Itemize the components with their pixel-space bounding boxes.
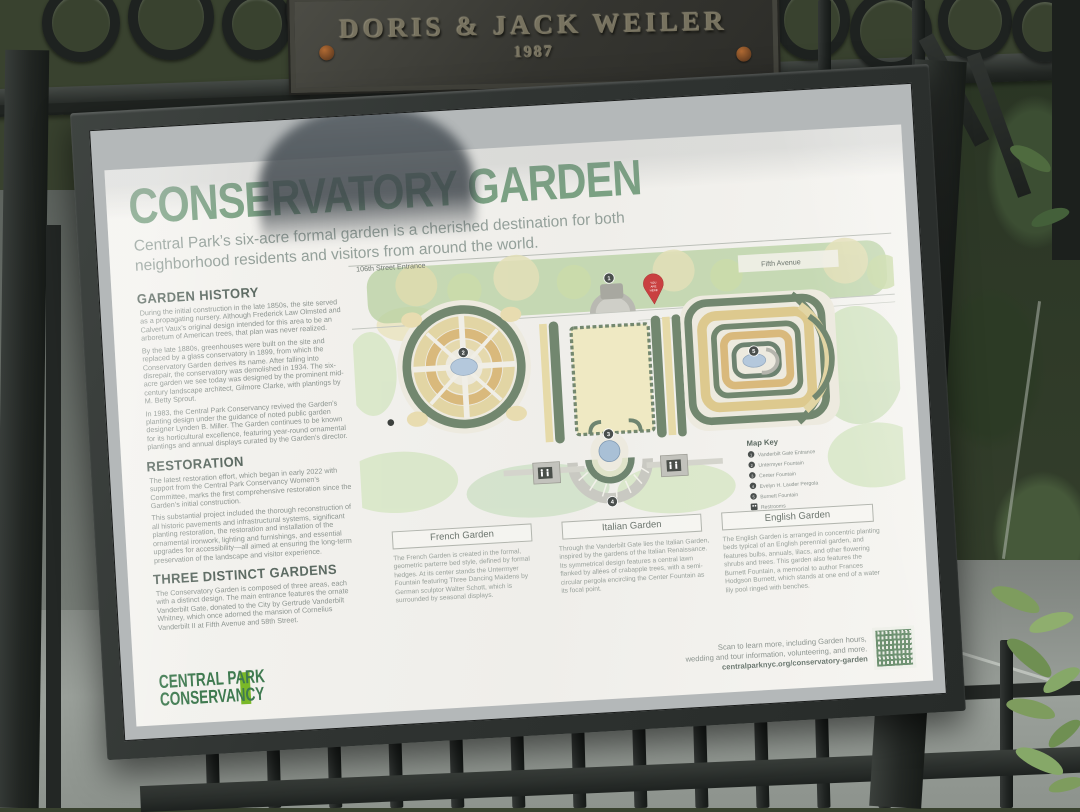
map-marker-1: 1 [604,273,615,284]
qr-code [872,626,916,670]
logo-line2: CONSERVANCY [159,685,266,709]
svg-text:4: 4 [752,485,754,489]
restroom-icon [538,467,553,479]
map-key-item: 1 Vanderbilt Gate Entrance [748,447,816,458]
svg-text:Center Fountain: Center Fountain [759,471,796,479]
fence-post-left-inner [46,225,61,808]
conservatory-garden-sign: CONSERVATORY GARDEN Central Park’s six-a… [70,64,966,760]
svg-text:3: 3 [751,474,753,478]
logo-text: CENTRAL PARK CONSERVANCY [158,668,266,710]
svg-text:2: 2 [462,350,466,356]
svg-text:Untermyer Fountain: Untermyer Fountain [758,460,804,469]
central-park-conservancy-logo: CENTRAL PARK CONSERVANCY [159,672,251,709]
garden-map-illustration: Fifth Avenue 106th Street Entrance 1 [348,229,907,537]
svg-text:Vanderbilt Gate Entrance: Vanderbilt Gate Entrance [758,449,816,458]
section-paragraph: This substantial project included the th… [151,503,358,565]
svg-text:1: 1 [750,453,752,457]
restroom-icon [666,459,681,471]
scan-text: Scan to learn more, including Garden hou… [685,635,868,675]
garden-map: Fifth Avenue 106th Street Entrance 1 [348,229,911,613]
map-marker-3: 3 [603,429,614,440]
section-paragraph: In 1983, the Central Park Conservancy re… [145,398,351,452]
accessibility-icon [387,419,394,426]
map-key-item: 4 Evelyn H. Lauder Pergola [750,479,819,491]
italian-garden-caption: Through the Vanderbilt Gate lies the Ita… [559,537,714,596]
map-key-item: 3 Center Fountain [749,470,796,480]
scan-block: Scan to learn more, including Garden hou… [684,626,916,681]
sign-text-column: GARDEN HISTORY During the initial constr… [136,273,364,676]
map-marker-2: 2 [458,347,469,358]
french-garden [394,296,535,437]
svg-text:HERE: HERE [650,288,658,292]
svg-text:Burnett Fountain: Burnett Fountain [760,492,798,500]
svg-text:3: 3 [607,432,611,438]
section-paragraph: By the late 1880s, greenhouses were buil… [142,336,349,407]
sign-glass: CONSERVATORY GARDEN Central Park’s six-a… [89,83,947,741]
english-garden-caption: The English Garden is arranged in concen… [723,527,886,595]
svg-text:2: 2 [751,464,753,468]
svg-text:5: 5 [752,495,754,499]
fence-bar-top [912,0,925,66]
photographer-reflection [254,101,476,243]
plaque-rivet [736,46,751,61]
map-key: Map Key 1 Vanderbilt Gate Entrance 2 Unt… [746,435,819,511]
svg-text:Evelyn H. Lauder Pergola: Evelyn H. Lauder Pergola [760,480,819,489]
fence-bar-top [818,0,831,72]
map-marker-4: 4 [607,496,618,507]
map-key-item: 5 Burnett Fountain [750,491,798,501]
french-garden-caption: The French Garden is created in the form… [393,547,548,606]
map-marker-5: 5 [748,346,759,357]
english-garden [679,288,841,432]
map-key-item: 2 Untermyer Fountain [748,459,804,470]
sign-paper: CONSERVATORY GARDEN Central Park’s six-a… [104,124,933,726]
map-key-title: Map Key [746,437,779,448]
fence-bar [1000,640,1013,808]
section-paragraph: The Conservatory Garden is composed of t… [156,578,362,632]
